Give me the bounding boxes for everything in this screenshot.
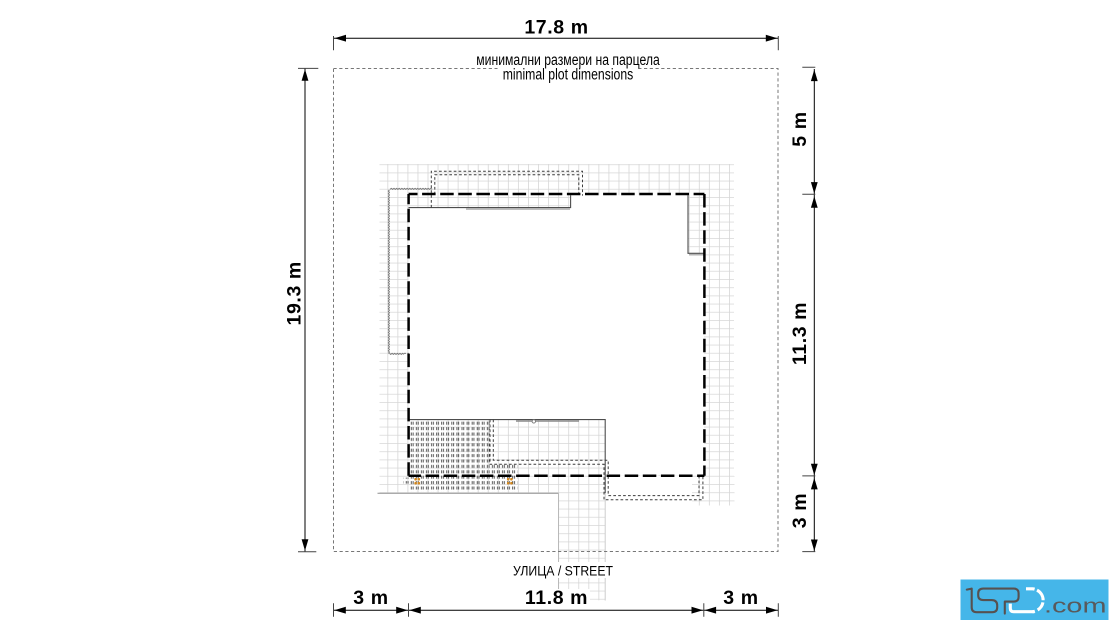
- svg-text:11.3 m: 11.3 m: [789, 302, 811, 365]
- svg-text:minimal plot dimensions: minimal plot dimensions: [503, 66, 634, 83]
- svg-text:3 m: 3 m: [789, 493, 811, 528]
- svg-text:5 m: 5 m: [789, 111, 811, 146]
- svg-text:19.3 m: 19.3 m: [284, 261, 306, 325]
- svg-text:3 m: 3 m: [723, 587, 758, 609]
- svg-text:11.8 m: 11.8 m: [525, 587, 588, 609]
- svg-text:УЛИЦА / STREET: УЛИЦА / STREET: [513, 563, 613, 578]
- svg-text:17.8 m: 17.8 m: [524, 17, 588, 39]
- svg-text:.com: .com: [1044, 595, 1107, 618]
- svg-text:3 m: 3 m: [353, 587, 388, 609]
